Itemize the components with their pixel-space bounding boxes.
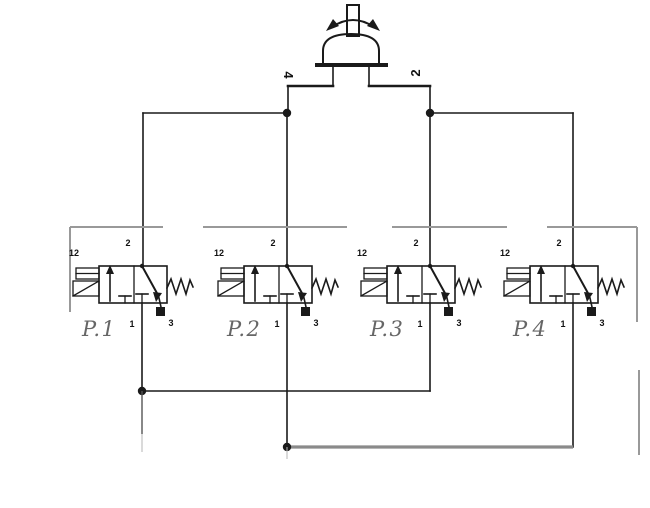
port-3-label: 3: [456, 318, 461, 328]
port-1-label: 1: [129, 319, 134, 329]
manifold-frame: [70, 227, 639, 455]
valve-name: P.1: [81, 317, 116, 341]
valve-name: P.3: [369, 317, 404, 341]
exhaust-port: [587, 298, 596, 316]
return-spring: [598, 279, 624, 294]
valve-p1: 12 2 1 3 P.1: [69, 238, 193, 341]
port-1-label: 1: [274, 319, 279, 329]
port-3-label: 3: [599, 318, 604, 328]
port-12-label: 12: [69, 248, 79, 258]
valve-p4: 12 2 1 3 P.4: [500, 238, 624, 341]
rotary-selector-valve: 4 2: [281, 5, 430, 113]
return-spring: [455, 279, 481, 294]
selector-dome: [323, 34, 379, 64]
pilot-solenoid-actuator: [73, 268, 99, 296]
port-12-label: 12: [357, 248, 367, 258]
port-12-label: 12: [500, 248, 510, 258]
port-3-label: 3: [313, 318, 318, 328]
pilot-solenoid-actuator: [361, 268, 387, 296]
valve-body: [530, 264, 598, 303]
valve-body: [244, 264, 312, 303]
valve-p3: 12 2 1 3 P.3: [357, 238, 481, 341]
valve-name: P.4: [512, 317, 547, 341]
port-3-label: 3: [168, 318, 173, 328]
port-2-label: 2: [413, 238, 418, 248]
exhaust-port: [444, 298, 453, 316]
port-2-label: 2: [125, 238, 130, 248]
valve-p2: 12 2 1 3 P.2: [214, 238, 338, 341]
port-2-label: 2: [556, 238, 561, 248]
port-2-label: 2: [270, 238, 275, 248]
exhaust-port: [156, 298, 165, 316]
port-1-label: 1: [560, 319, 565, 329]
supply-bus-lines: [138, 303, 573, 459]
pilot-solenoid-actuator: [218, 268, 244, 296]
return-spring: [167, 279, 193, 294]
selector-port-2-label: 2: [408, 69, 423, 76]
rotation-arrows-icon: [326, 19, 380, 31]
selector-port-4-label: 4: [281, 71, 296, 79]
exhaust-port: [301, 298, 310, 316]
pilot-bus-lines: [143, 109, 573, 266]
return-spring: [312, 279, 338, 294]
port-1-label: 1: [417, 319, 422, 329]
pilot-solenoid-actuator: [504, 268, 530, 296]
valve-body: [99, 264, 167, 303]
valve-body: [387, 264, 455, 303]
pneumatic-schematic-svg: 4 2: [0, 0, 650, 508]
port-12-label: 12: [214, 248, 224, 258]
circuit-diagram: 4 2: [0, 0, 650, 508]
valve-name: P.2: [226, 317, 261, 341]
